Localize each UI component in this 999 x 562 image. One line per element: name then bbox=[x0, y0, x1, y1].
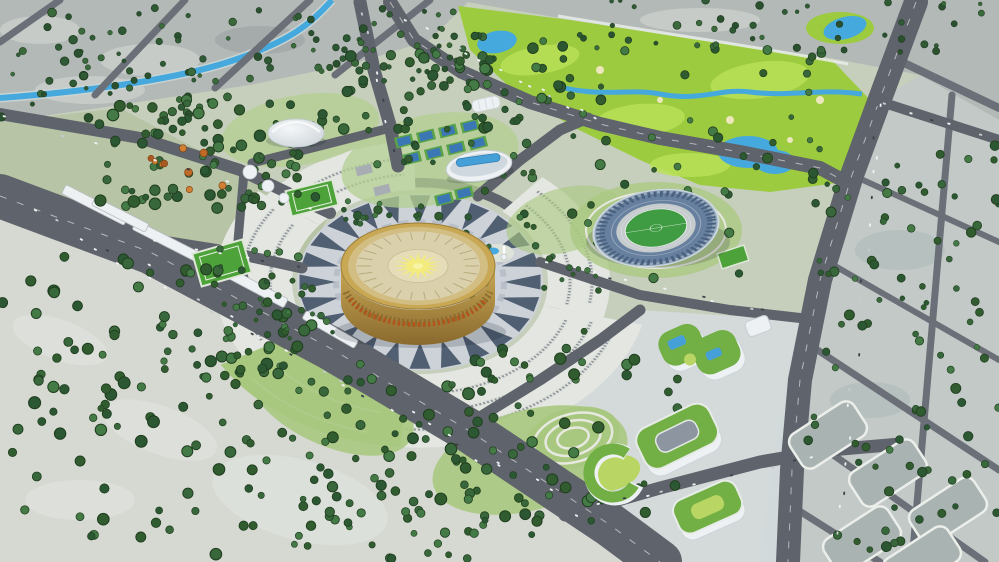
aerial-scene bbox=[0, 0, 999, 562]
golden-arena bbox=[334, 223, 506, 348]
masterplan-render bbox=[0, 0, 999, 562]
white-dome-arena bbox=[266, 119, 326, 148]
sunburst-emblem bbox=[393, 252, 443, 280]
